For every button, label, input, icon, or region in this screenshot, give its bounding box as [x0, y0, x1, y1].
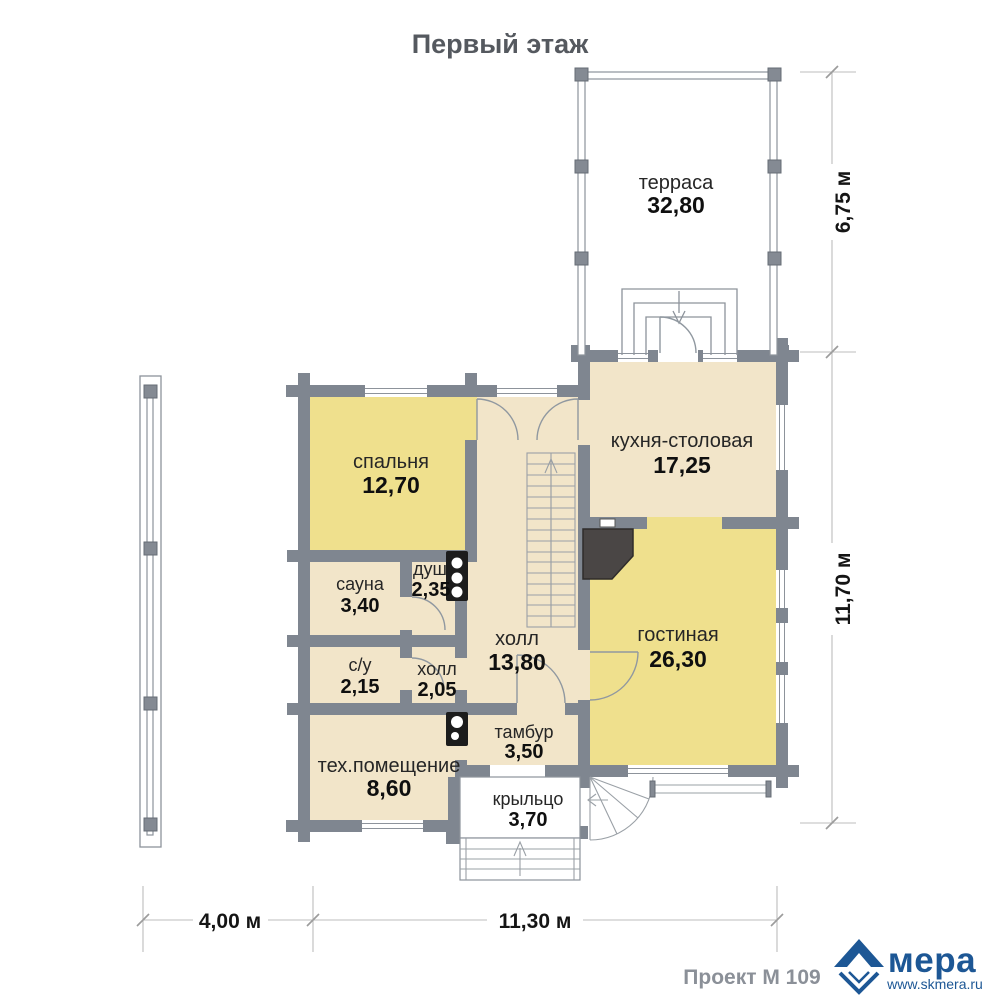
dim-terrace-height: 6,75 м	[832, 171, 855, 233]
project-number: Проект М 109	[683, 966, 820, 989]
wc-area: 2,15	[341, 676, 380, 698]
vestibule-name: тамбур	[495, 722, 554, 742]
kitchen-living-opening	[647, 517, 722, 529]
terrace-area: 32,80	[647, 192, 705, 218]
hall-name: холл	[495, 628, 539, 650]
room-label-terrace: терраса 32,80	[639, 172, 714, 218]
living-area: 26,30	[649, 646, 707, 672]
terrace-entry-arrow	[673, 291, 685, 323]
brand-name: мера	[888, 941, 976, 980]
vestibule-area: 3,50	[505, 741, 544, 763]
winder-arrow	[588, 794, 608, 806]
hall-area: 13,80	[488, 649, 546, 675]
kitchen-name: кухня-столовая	[611, 430, 754, 452]
room-label-sauna: сауна 3,40	[336, 574, 385, 617]
tech-name: тех.помещение	[318, 755, 461, 777]
room-label-living: гостиная 26,30	[637, 624, 718, 672]
shower-name: душ	[413, 559, 447, 579]
dim-house-height: 11,70 м	[832, 553, 855, 626]
kitchen-area: 17,25	[653, 452, 711, 478]
porch-name: крыльцо	[493, 789, 564, 809]
wc-name: с/у	[348, 655, 371, 675]
boiler-icon-2	[446, 712, 468, 746]
living-name: гостиная	[637, 624, 718, 646]
floor-plan-page: Первый этаж	[0, 0, 1000, 1000]
winder-stairs	[590, 777, 653, 840]
sauna-name: сауна	[336, 574, 385, 594]
hall2-name: холл	[417, 659, 456, 679]
bedroom-area: 12,70	[362, 472, 420, 498]
terrace-door-swing	[660, 317, 696, 353]
sauna-area: 3,40	[341, 595, 380, 617]
dim-house-width: 11,30 м	[499, 910, 572, 933]
hall2-area: 2,05	[418, 679, 457, 701]
page-title: Первый этаж	[412, 29, 589, 59]
website-url: www.skmera.ru	[886, 976, 983, 992]
dim-pergola-width: 4,00 м	[199, 910, 261, 933]
mera-logo-icon	[834, 939, 884, 992]
room-label-hall2: холл 2,05	[417, 659, 456, 701]
porch-area: 3,70	[509, 809, 548, 831]
floor-plan-drawing: Первый этаж	[0, 0, 1000, 1000]
room-label-bedroom: спальня 12,70	[353, 451, 429, 498]
bedroom-name: спальня	[353, 451, 429, 473]
footer: Проект М 109 мера www.skmera.ru	[683, 939, 983, 992]
terrace-name: терраса	[639, 172, 714, 194]
tech-area: 8,60	[367, 775, 412, 801]
room-label-hall: холл 13,80	[488, 628, 546, 675]
room-label-shower: душ 2,35	[412, 559, 451, 601]
shower-area: 2,35	[412, 579, 451, 601]
pergola-structure	[140, 376, 161, 847]
